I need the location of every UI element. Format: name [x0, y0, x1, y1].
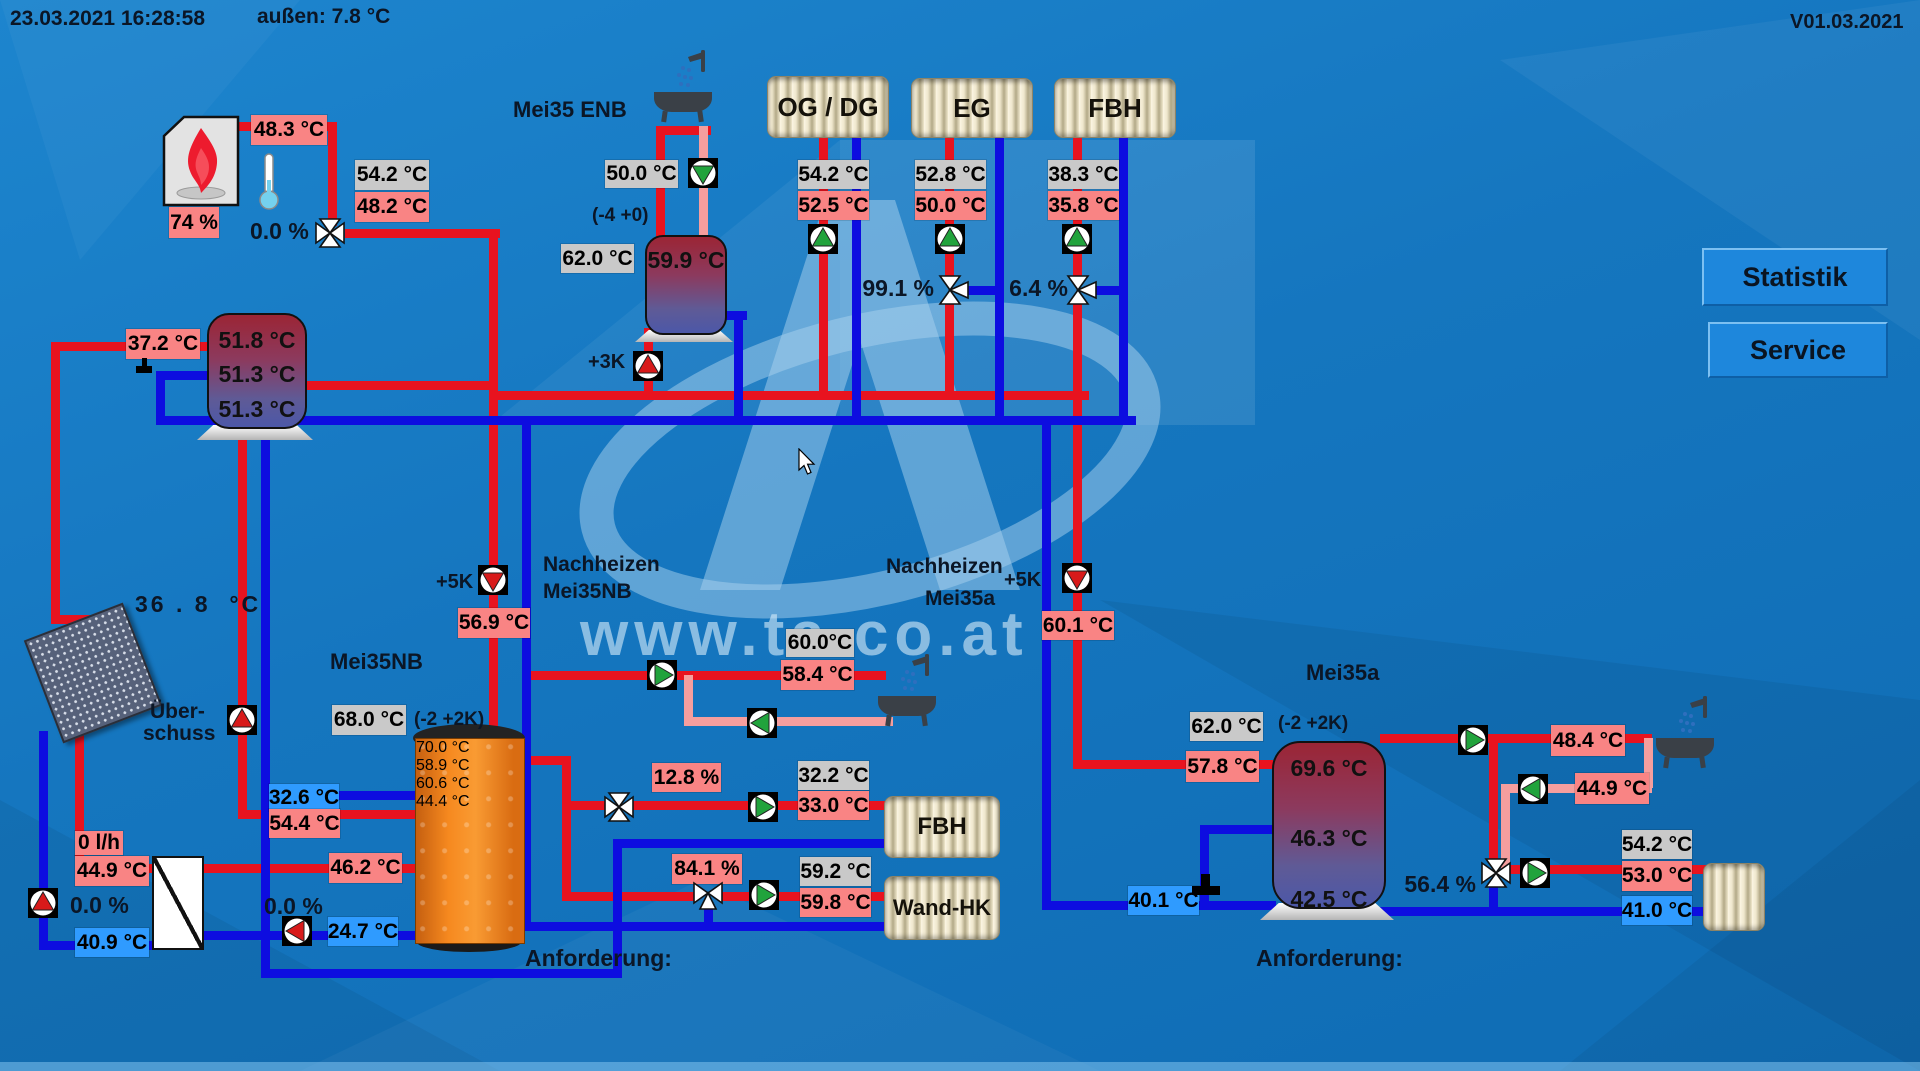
a-set: 62.0 °C — [1190, 712, 1263, 741]
radiator-wand-hk: Wand-HK — [884, 876, 1000, 940]
a-temp-3: 42.5 °C — [1274, 886, 1384, 913]
solar-return-temp: 40.9 °C — [75, 928, 149, 957]
pipe-boiler-valve-h — [345, 229, 500, 238]
pipe-wand-left-h — [562, 892, 694, 901]
pipe-fbhmid-left-h — [562, 801, 607, 810]
ogdg-pump[interactable] — [808, 224, 838, 254]
a-hk-set: 54.2 °C — [1622, 830, 1692, 859]
a-bath-icon — [1654, 694, 1716, 779]
a-hk-return: 41.0 °C — [1622, 896, 1692, 925]
a-sensor-icon-2 — [1201, 874, 1210, 887]
a-supply-temp: 60.1 °C — [1042, 611, 1114, 640]
bottom-strip — [0, 1062, 1920, 1071]
statistik-button[interactable]: Statistik — [1702, 248, 1888, 306]
a-valve-pct: 56.4 % — [1402, 872, 1476, 896]
radiator-fbh-mid: FBH — [884, 796, 1000, 858]
nb-set: 68.0 °C — [332, 705, 406, 735]
fbh-mixing-valve[interactable] — [1065, 273, 1099, 312]
a-hk-mixing-valve[interactable] — [1479, 856, 1513, 895]
a-hysteresis: (-2 +2K) — [1278, 714, 1348, 734]
nb-hysteresis: (-2 +2K) — [414, 710, 484, 730]
radiator-fbh-top: FBH — [1054, 78, 1176, 138]
radiator-eg-label: EG — [953, 93, 991, 124]
radiator-ogdg-label: OG / DG — [777, 92, 878, 123]
enb-tap-set: 50.0 °C — [605, 160, 678, 188]
eg-valve-pct: 99.1 % — [862, 276, 934, 300]
pipe-fbh-return — [1119, 134, 1128, 421]
a-nachheizen-1: Nachheizen — [886, 556, 1003, 578]
enb-3k-pump[interactable] — [633, 351, 663, 381]
a-anforderung: Anforderung: — [1256, 946, 1403, 970]
radiator-fbh-mid-label: FBH — [917, 813, 966, 841]
wand-mixing-valve[interactable] — [691, 880, 725, 917]
fbhmid-valve-pct: 12.8 % — [652, 763, 721, 792]
nb-tank: 70.0 °C 58.9 °C 60.6 °C 44.4 °C — [415, 738, 525, 944]
pipe-left-return-v — [261, 416, 270, 976]
nb-offset: +5K — [436, 572, 473, 593]
fbhmid-set: 32.2 °C — [798, 761, 869, 790]
a-dhw-pump[interactable] — [1458, 725, 1488, 755]
pipe-buffer-return-h — [156, 371, 214, 380]
radiator-fbh-top-label: FBH — [1088, 93, 1141, 124]
nb-dhw-actual: 58.4 °C — [781, 660, 854, 690]
surplus-pump[interactable] — [227, 705, 257, 735]
enb-hysteresis: (-4 +0) — [592, 206, 649, 226]
pipe-a-hk-v — [1489, 734, 1498, 861]
buffer-inlet-temp: 37.2 °C — [126, 329, 200, 359]
radiator-a-hk — [1703, 863, 1765, 931]
a-sensor-icon — [1192, 886, 1220, 895]
nb-dhw-set: 60.0°C — [786, 629, 854, 657]
enb-pump[interactable] — [688, 158, 718, 188]
wand-actual: 59.8 °C — [800, 888, 871, 917]
a-nachheizen-2: Mei35a — [925, 588, 995, 610]
a-temp-1: 69.6 °C — [1274, 755, 1384, 782]
pipe-buffer-inlet-h — [303, 381, 493, 390]
boiler-icon — [161, 114, 241, 208]
pipe-nb-dhw-return-h — [684, 717, 893, 726]
enb-tank: 59.9 °C — [645, 235, 727, 335]
buffer-sensor-icon-2 — [142, 358, 147, 367]
boiler-set-temp: 54.2 °C — [355, 160, 429, 190]
enb-offset: +3K — [588, 352, 625, 373]
radiator-eg: EG — [911, 78, 1033, 138]
radiator-wand-hk-label: Wand-HK — [893, 895, 991, 921]
eg-actual: 50.0 °C — [915, 191, 986, 220]
nb-supply-temp: 56.9 °C — [458, 608, 530, 638]
pipe-boiler-down-v — [489, 229, 498, 395]
nb-inmid-temp: 46.2 °C — [329, 853, 402, 883]
boiler-actual-temp: 48.2 °C — [355, 192, 429, 222]
a-title: Mei35a — [1306, 661, 1379, 684]
pipe-fbh-a-riser — [1073, 300, 1082, 768]
version-label: V01.03.2021 — [1790, 12, 1903, 33]
a-inlet-temp: 57.8 °C — [1186, 751, 1259, 782]
pipe-a-inlet2-h — [1200, 825, 1276, 834]
nb-temp-1: 70.0 °C — [416, 739, 524, 757]
mouse-cursor — [798, 448, 824, 478]
a-offset: +5K — [1004, 570, 1041, 591]
solar-pump[interactable] — [28, 888, 58, 918]
wand-pump[interactable] — [749, 880, 779, 910]
fbhmid-pump[interactable] — [748, 792, 778, 822]
nb-nachheizen-2: Mei35NB — [543, 581, 632, 603]
pipe-nb-dhw-return-v — [684, 675, 693, 721]
buffer-temp-bottom: 51.3 °C — [209, 396, 305, 423]
thermometer-icon — [256, 150, 282, 212]
boiler-mixing-valve[interactable] — [313, 216, 347, 255]
wand-set: 59.2 °C — [800, 857, 871, 886]
solar-panel-icon — [32, 610, 152, 750]
buffer-temp-top: 51.8 °C — [209, 327, 305, 354]
nb-nachheizen-1: Nachheizen — [543, 554, 660, 576]
solar-surplus-2: schuss — [143, 723, 215, 745]
radiator-ogdg: OG / DG — [767, 76, 889, 138]
fbh-set: 38.3 °C — [1048, 160, 1119, 189]
enb-tank-temp: 59.9 °C — [647, 247, 725, 274]
outside-temp: außen: 7.8 °C — [257, 6, 390, 28]
pipe-solar-riser-v — [51, 342, 60, 624]
pipe-eg-return — [995, 134, 1004, 421]
solar-pump-pct: 0.0 % — [70, 893, 129, 917]
ogdg-set: 54.2 °C — [798, 160, 869, 189]
pipe-a-return-v — [1042, 416, 1051, 908]
nb-anforderung: Anforderung: — [525, 946, 672, 970]
nb-title: Mei35NB — [330, 650, 423, 673]
fbhmid-mixing-valve[interactable] — [602, 790, 636, 829]
fbh-actual: 35.8 °C — [1048, 191, 1119, 220]
a-return-temp: 40.1 °C — [1128, 886, 1199, 915]
eg-mixing-valve[interactable] — [937, 273, 971, 312]
pipe-boiler-supply-v — [328, 122, 337, 226]
fbhmid-actual: 33.0 °C — [798, 791, 869, 820]
a-temp-2: 46.3 °C — [1274, 825, 1384, 852]
buffer-tank: 51.8 °C 51.3 °C 51.3 °C — [207, 313, 307, 429]
ogdg-actual: 52.5 °C — [798, 191, 869, 220]
eg-set: 52.8 °C — [915, 160, 986, 189]
solar-surplus-1: Über- — [150, 701, 205, 723]
service-button[interactable]: Service — [1708, 322, 1888, 378]
buffer-temp-mid: 51.3 °C — [209, 361, 305, 388]
fbh-valve-pct: 6.4 % — [1004, 276, 1068, 300]
buffer-sensor-icon — [136, 366, 152, 373]
a-dhw-supply: 48.4 °C — [1551, 725, 1625, 756]
nb-temp-4: 44.4 °C — [416, 793, 524, 811]
fbh-pump[interactable] — [1062, 224, 1092, 254]
nb-temp-2: 58.9 °C — [416, 757, 524, 775]
enb-title: Mei35 ENB — [513, 98, 627, 121]
hmi-screen: www.ta.co.at 23.03.2021 16:28:58 außen: … — [0, 0, 1920, 1071]
a-dhw-return: 44.9 °C — [1575, 773, 1649, 804]
pipe-hx-out-h — [198, 931, 265, 940]
nb-dhw-return-pump[interactable] — [747, 708, 777, 738]
enb-set: 62.0 °C — [561, 244, 634, 273]
datetime: 23.03.2021 16:28:58 — [10, 8, 205, 30]
pipe-surplus-v — [238, 440, 247, 819]
boiler-valve-pct: 0.0 % — [250, 219, 309, 243]
pipe-a-inlet2-v — [1200, 825, 1209, 910]
pipe-enb-drain-v — [734, 311, 743, 421]
solar-collector-temp: 36 . 8 °C — [135, 592, 261, 616]
pipe-eg-riser-bottom — [945, 300, 954, 395]
a-hk-actual: 53.0 °C — [1622, 861, 1692, 891]
solar-flow: 0 l/h — [75, 831, 123, 855]
a-hk-pump[interactable] — [1520, 858, 1550, 888]
a-tank: 69.6 °C 46.3 °C 42.5 °C — [1272, 741, 1386, 909]
boiler-power: 74 % — [169, 207, 219, 238]
nb-outcold-temp: 24.7 °C — [328, 917, 398, 946]
solar-supply-temp: 44.9 °C — [75, 856, 149, 886]
nb-dhw-pump[interactable] — [647, 660, 677, 690]
heat-exchanger-ic — [152, 856, 204, 950]
nb-5k-pump[interactable] — [478, 565, 508, 595]
nb-return-pct: 0.0 % — [264, 894, 323, 918]
eg-pump[interactable] — [935, 224, 965, 254]
nb-bath-icon — [876, 652, 938, 737]
a-5k-pump[interactable] — [1062, 563, 1092, 593]
nb-return-pump[interactable] — [282, 916, 312, 946]
a-dhw-return-pump[interactable] — [1518, 774, 1548, 804]
nb-temp-3: 60.6 °C — [416, 775, 524, 793]
pipe-nb-manifold-v — [562, 756, 571, 901]
boiler-supply-temp: 48.3 °C — [251, 115, 327, 145]
nb-inhot-temp: 54.4 °C — [269, 809, 340, 838]
enb-bath-icon — [652, 48, 714, 133]
nb-incold-temp: 32.6 °C — [269, 784, 339, 811]
